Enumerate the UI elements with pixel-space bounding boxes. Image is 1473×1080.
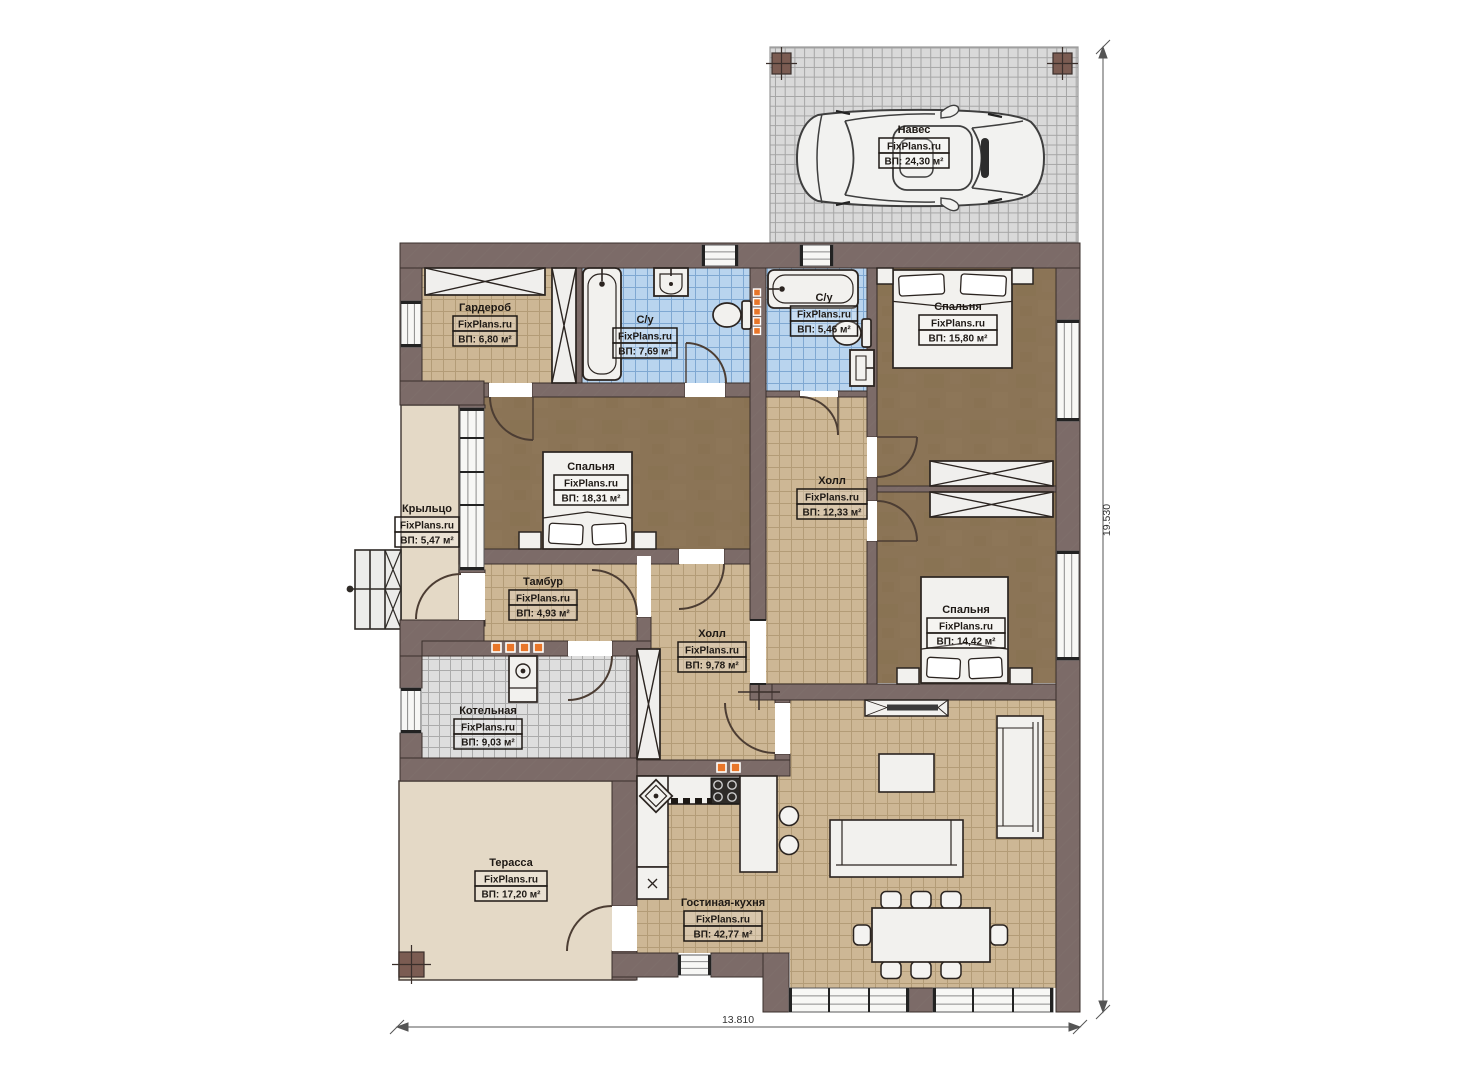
svg-text:FixPlans.ru: FixPlans.ru bbox=[797, 310, 851, 321]
svg-text:Котельная: Котельная bbox=[459, 705, 517, 717]
svg-text:ВП: 9,78 м²: ВП: 9,78 м² bbox=[685, 661, 739, 672]
svg-text:Холл: Холл bbox=[818, 475, 846, 487]
svg-text:ВП: 12,33 м²: ВП: 12,33 м² bbox=[802, 508, 862, 519]
svg-text:ВП: 14,42 м²: ВП: 14,42 м² bbox=[936, 637, 996, 648]
svg-text:Спальня: Спальня bbox=[934, 301, 982, 313]
svg-text:ВП: 5,47 м²: ВП: 5,47 м² bbox=[400, 536, 454, 547]
svg-text:ВП: 24,30 м²: ВП: 24,30 м² bbox=[884, 157, 944, 168]
svg-text:FixPlans.ru: FixPlans.ru bbox=[516, 594, 570, 605]
svg-text:FixPlans.ru: FixPlans.ru bbox=[458, 320, 512, 331]
svg-text:FixPlans.ru: FixPlans.ru bbox=[564, 479, 618, 490]
svg-text:Тамбур: Тамбур bbox=[523, 576, 563, 588]
svg-text:ВП: 17,20 м²: ВП: 17,20 м² bbox=[481, 890, 541, 901]
svg-text:FixPlans.ru: FixPlans.ru bbox=[805, 493, 859, 504]
svg-text:Спальня: Спальня bbox=[567, 461, 615, 473]
svg-text:FixPlans.ru: FixPlans.ru bbox=[931, 319, 985, 330]
svg-text:С/у: С/у bbox=[636, 314, 654, 326]
svg-text:Гостиная-кухня: Гостиная-кухня bbox=[681, 897, 765, 909]
svg-text:ВП: 7,69 м²: ВП: 7,69 м² bbox=[618, 347, 672, 358]
svg-text:FixPlans.ru: FixPlans.ru bbox=[400, 521, 454, 532]
svg-text:ВП: 15,80 м²: ВП: 15,80 м² bbox=[928, 334, 988, 345]
svg-text:С/у: С/у bbox=[815, 292, 833, 304]
svg-text:FixPlans.ru: FixPlans.ru bbox=[618, 332, 672, 343]
svg-text:Спальня: Спальня bbox=[942, 604, 990, 616]
svg-text:19.530: 19.530 bbox=[1101, 504, 1113, 536]
svg-text:ВП: 5,46 м²: ВП: 5,46 м² bbox=[797, 325, 851, 336]
svg-text:Холл: Холл bbox=[698, 628, 726, 640]
svg-text:FixPlans.ru: FixPlans.ru bbox=[887, 142, 941, 153]
svg-text:Навес: Навес bbox=[898, 124, 931, 136]
svg-text:FixPlans.ru: FixPlans.ru bbox=[939, 622, 993, 633]
svg-text:FixPlans.ru: FixPlans.ru bbox=[685, 646, 739, 657]
svg-text:Крыльцо: Крыльцо bbox=[402, 503, 452, 515]
svg-text:FixPlans.ru: FixPlans.ru bbox=[461, 723, 515, 734]
svg-text:ВП: 18,31 м²: ВП: 18,31 м² bbox=[561, 494, 621, 505]
svg-text:ВП: 42,77 м²: ВП: 42,77 м² bbox=[693, 930, 753, 941]
svg-text:ВП: 6,80 м²: ВП: 6,80 м² bbox=[458, 335, 512, 346]
svg-text:Терасса: Терасса bbox=[489, 857, 533, 869]
svg-text:FixPlans.ru: FixPlans.ru bbox=[484, 875, 538, 886]
svg-text:Гардероб: Гардероб bbox=[459, 302, 511, 314]
svg-text:13.810: 13.810 bbox=[722, 1014, 754, 1026]
svg-text:ВП: 4,93 м²: ВП: 4,93 м² bbox=[516, 609, 570, 620]
svg-text:ВП: 9,03 м²: ВП: 9,03 м² bbox=[461, 738, 515, 749]
svg-text:FixPlans.ru: FixPlans.ru bbox=[696, 915, 750, 926]
